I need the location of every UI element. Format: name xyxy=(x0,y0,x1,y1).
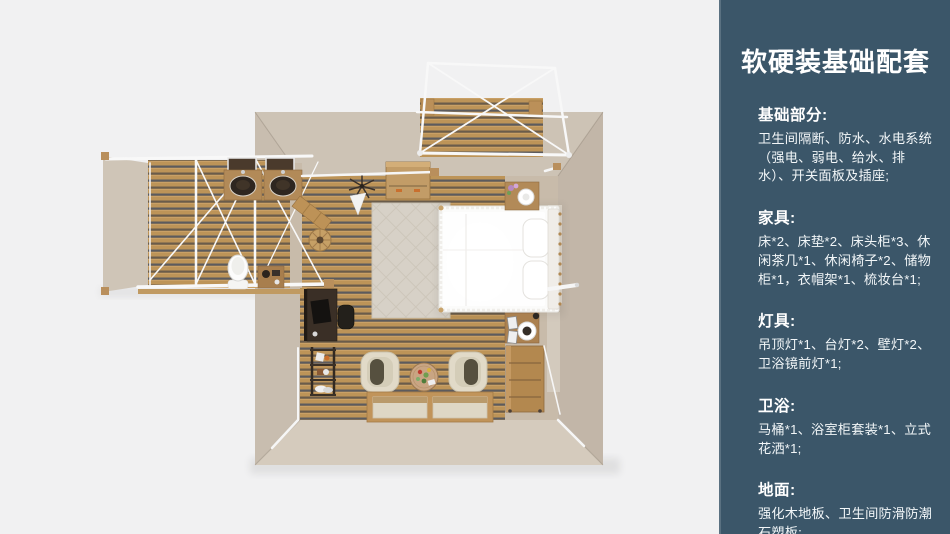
section-foundation: 基础部分: 卫生间隔断、防水、水电系统（强电、弱电、给水、排水）、开关面板及插座… xyxy=(758,103,935,186)
desk xyxy=(304,289,337,341)
section-bathroom-heading: 卫浴: xyxy=(758,394,935,416)
bathroom-annex xyxy=(101,152,334,295)
floorplan xyxy=(0,0,719,534)
section-lighting-heading: 灯具: xyxy=(758,309,935,331)
section-foundation-body: 卫生间隔断、防水、水电系统（强电、弱电、给水、排水）、开关面板及插座; xyxy=(758,130,935,186)
section-furniture: 家具: 床*2、床垫*2、床头柜*3、休闲茶几*1、休闲椅子*2、储物柜*1，衣… xyxy=(758,206,935,289)
bath-stand xyxy=(258,266,284,288)
bathroom-left-wall xyxy=(103,156,148,292)
section-flooring-heading: 地面: xyxy=(758,478,935,500)
lounge-chair xyxy=(449,352,487,392)
nightstand-with-mirror xyxy=(505,313,539,344)
section-furniture-body: 床*2、床垫*2、床头柜*3、休闲茶几*1、休闲椅子*2、储物柜*1，衣帽架*1… xyxy=(758,233,935,289)
double-bed xyxy=(436,204,564,316)
terrace-deck xyxy=(420,98,543,157)
nightstand-with-table-lamp xyxy=(505,182,539,210)
floor-mats xyxy=(367,392,493,422)
laptop xyxy=(310,299,331,324)
desk-chair xyxy=(338,305,354,329)
lounge-chair xyxy=(361,352,399,392)
section-lighting: 灯具: 吊顶灯*1、台灯*2、壁灯*2、卫浴镜前灯*1; xyxy=(758,309,935,373)
section-lighting-body: 吊顶灯*1、台灯*2、壁灯*2、卫浴镜前灯*1; xyxy=(758,336,935,373)
section-bathroom: 卫浴: 马桶*1、浴室柜套装*1、立式花洒*1; xyxy=(758,394,935,458)
pillow xyxy=(523,219,549,257)
section-flooring-body: 强化木地板、卫生间防滑防潮石塑板; xyxy=(758,505,935,534)
headboard xyxy=(548,209,559,309)
floorplan-render xyxy=(0,0,719,534)
storage-crate xyxy=(386,162,430,199)
slide: 软硬装基础配套 基础部分: 卫生间隔断、防水、水电系统（强电、弱电、给水、排水）… xyxy=(0,0,950,534)
sidebar-panel: 软硬装基础配套 基础部分: 卫生间隔断、防水、水电系统（强电、弱电、给水、排水）… xyxy=(719,0,950,534)
section-foundation-heading: 基础部分: xyxy=(758,103,935,125)
dresser xyxy=(506,346,544,413)
laundry-basket xyxy=(309,229,331,251)
sidebar-title: 软硬装基础配套 xyxy=(741,42,935,79)
toilet xyxy=(228,255,248,289)
section-flooring: 地面: 强化木地板、卫生间防滑防潮石塑板; xyxy=(758,478,935,534)
round-tea-table xyxy=(410,363,438,391)
section-furniture-heading: 家具: xyxy=(758,206,935,228)
wall-panel xyxy=(547,312,560,392)
pillow xyxy=(523,261,549,299)
section-bathroom-body: 马桶*1、浴室柜套装*1、立式花洒*1; xyxy=(758,421,935,458)
